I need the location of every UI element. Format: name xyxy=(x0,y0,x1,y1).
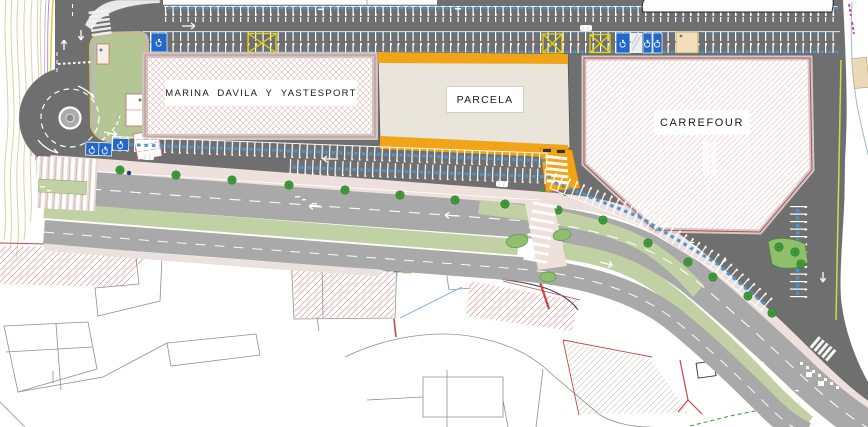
terrain-hatch xyxy=(565,342,688,414)
site-plan-drawing xyxy=(0,0,868,427)
label-building-marina: MARINA DAVILA Y YASTESPORT xyxy=(165,80,357,106)
label-building-carrefour: CARREFOUR xyxy=(654,110,750,135)
park-structure xyxy=(97,44,109,64)
hydrant-marker xyxy=(127,171,131,175)
margin-structure xyxy=(851,57,868,88)
demolition-hatch xyxy=(466,281,578,331)
site-plan-canvas: MARINA DAVILA Y YASTESPORT PARCELA CARRE… xyxy=(0,0,868,427)
building-footprint-north xyxy=(642,0,833,12)
cart-shelter xyxy=(676,32,698,53)
label-building-parcela: PARCELA xyxy=(446,86,524,113)
handicap-sign-block xyxy=(86,142,112,156)
parcela-orange-band xyxy=(378,52,568,64)
